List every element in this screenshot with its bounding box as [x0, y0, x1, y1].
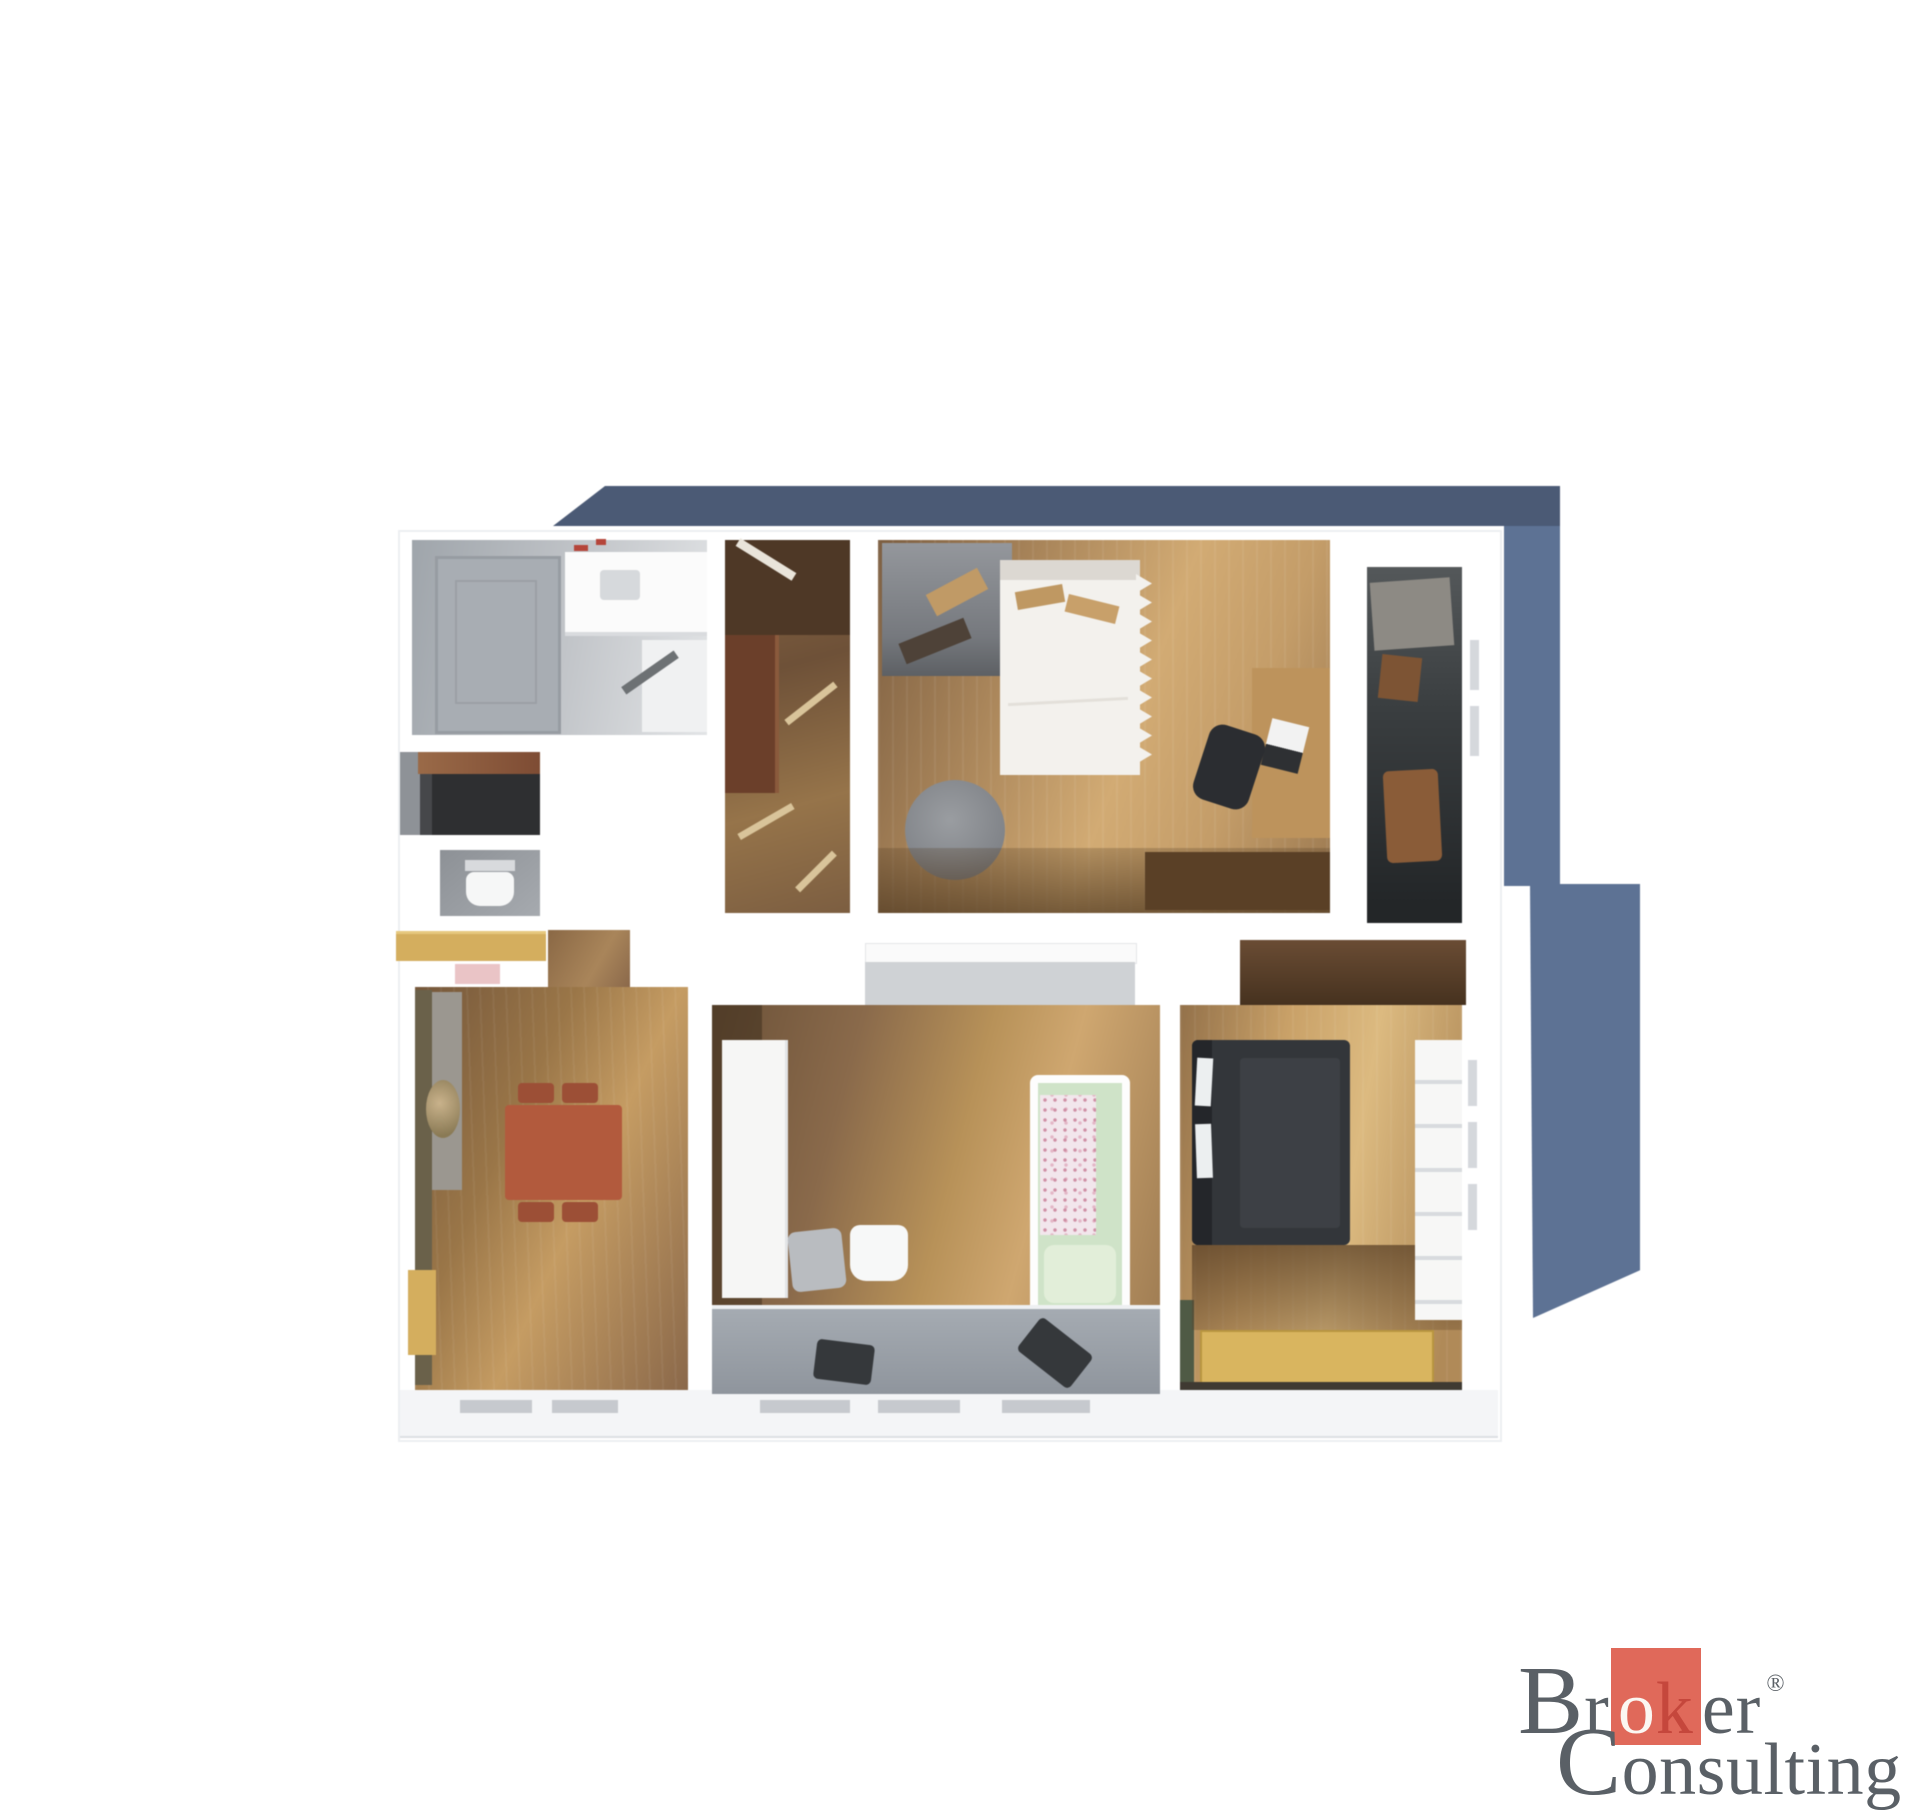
- bed-headboard: [1000, 560, 1140, 580]
- utility-floor-edge: [400, 752, 420, 835]
- bedroom-bottom-white-wardrobe: [1415, 1040, 1462, 1320]
- dining-plant: [426, 1080, 460, 1138]
- terrace-chair: [813, 1339, 875, 1386]
- floorplan-render: [0, 0, 1920, 1814]
- registered-trademark-icon: ®: [1766, 1671, 1785, 1697]
- hallway-wardrobe: [725, 635, 779, 793]
- kitchen-counter-front: [865, 962, 1135, 1005]
- dining-chair: [518, 1202, 554, 1222]
- building-shadow-right-block: [1530, 884, 1640, 1318]
- bathroom-toilet: [850, 1225, 908, 1281]
- wc-toilet: [466, 872, 514, 906]
- kitchen-counter-top: [865, 943, 1137, 964]
- bathroom-red-accessory: [596, 539, 606, 545]
- bed-pillow-white: [1195, 1124, 1213, 1179]
- loggia-table: [1370, 577, 1455, 650]
- building-shadow-top: [553, 486, 1560, 526]
- bedroom-bottom-wardrobe-band: [1240, 940, 1466, 1005]
- logo-line2: Consulting: [1556, 1714, 1902, 1812]
- hallway-dark-alcove: [725, 540, 850, 635]
- kitchen-pink-appliance: [455, 964, 500, 984]
- floorplan-page: Broker® Consulting: [0, 0, 1920, 1814]
- dining-chair: [562, 1202, 598, 1222]
- wc-cistern: [465, 860, 515, 871]
- bedroom-bottom-yellow-rug: [1200, 1330, 1434, 1384]
- loggia-chair: [1383, 769, 1443, 864]
- bed-duvet-dark: [1240, 1058, 1340, 1228]
- window-reveal: [1468, 1122, 1477, 1168]
- building-shadow-right-strip: [1504, 526, 1560, 886]
- bed-pillow-white: [1195, 1058, 1213, 1107]
- window-sill: [760, 1400, 850, 1413]
- dining-table-red: [505, 1105, 622, 1200]
- dining-chair: [518, 1083, 554, 1103]
- logo-letters-onsulting: onsulting: [1622, 1729, 1902, 1811]
- window-reveal: [1468, 1184, 1477, 1230]
- dining-yellow-sideboard: [408, 1270, 436, 1355]
- corridor-floor: [548, 930, 630, 988]
- logo-letter-C: C: [1556, 1708, 1622, 1814]
- terrace-gray-floor: [712, 1305, 1160, 1394]
- window-sill: [460, 1400, 532, 1413]
- broker-consulting-logo: Broker® Consulting: [1498, 1622, 1918, 1797]
- bathtub-floral-curtain: [1040, 1095, 1096, 1235]
- window-reveal: [1468, 1060, 1477, 1106]
- bathroom-sink: [600, 570, 640, 600]
- utility-appliance: [432, 774, 540, 835]
- window-sill: [552, 1400, 618, 1413]
- bathroom-stool: [787, 1227, 847, 1292]
- bathroom-red-accessory: [574, 545, 588, 551]
- window-sill: [878, 1400, 960, 1413]
- kitchen-counter-yellow: [396, 931, 546, 961]
- bedroom-top-dresser: [1145, 852, 1330, 910]
- loggia-chair: [1378, 654, 1422, 702]
- bottom-outer-wall: [400, 1390, 1498, 1438]
- utility-cabinet: [418, 752, 540, 774]
- dining-chair: [562, 1083, 598, 1103]
- window-reveal: [1470, 640, 1479, 690]
- bedroom-bottom-wall-line: [1180, 1382, 1462, 1390]
- window-reveal: [1470, 706, 1479, 756]
- window-sill: [1002, 1400, 1090, 1413]
- bathroom-door-inner-line: [455, 580, 537, 704]
- bathtub-basin: [1044, 1245, 1116, 1303]
- bathroom-tall-cabinet: [722, 1040, 788, 1298]
